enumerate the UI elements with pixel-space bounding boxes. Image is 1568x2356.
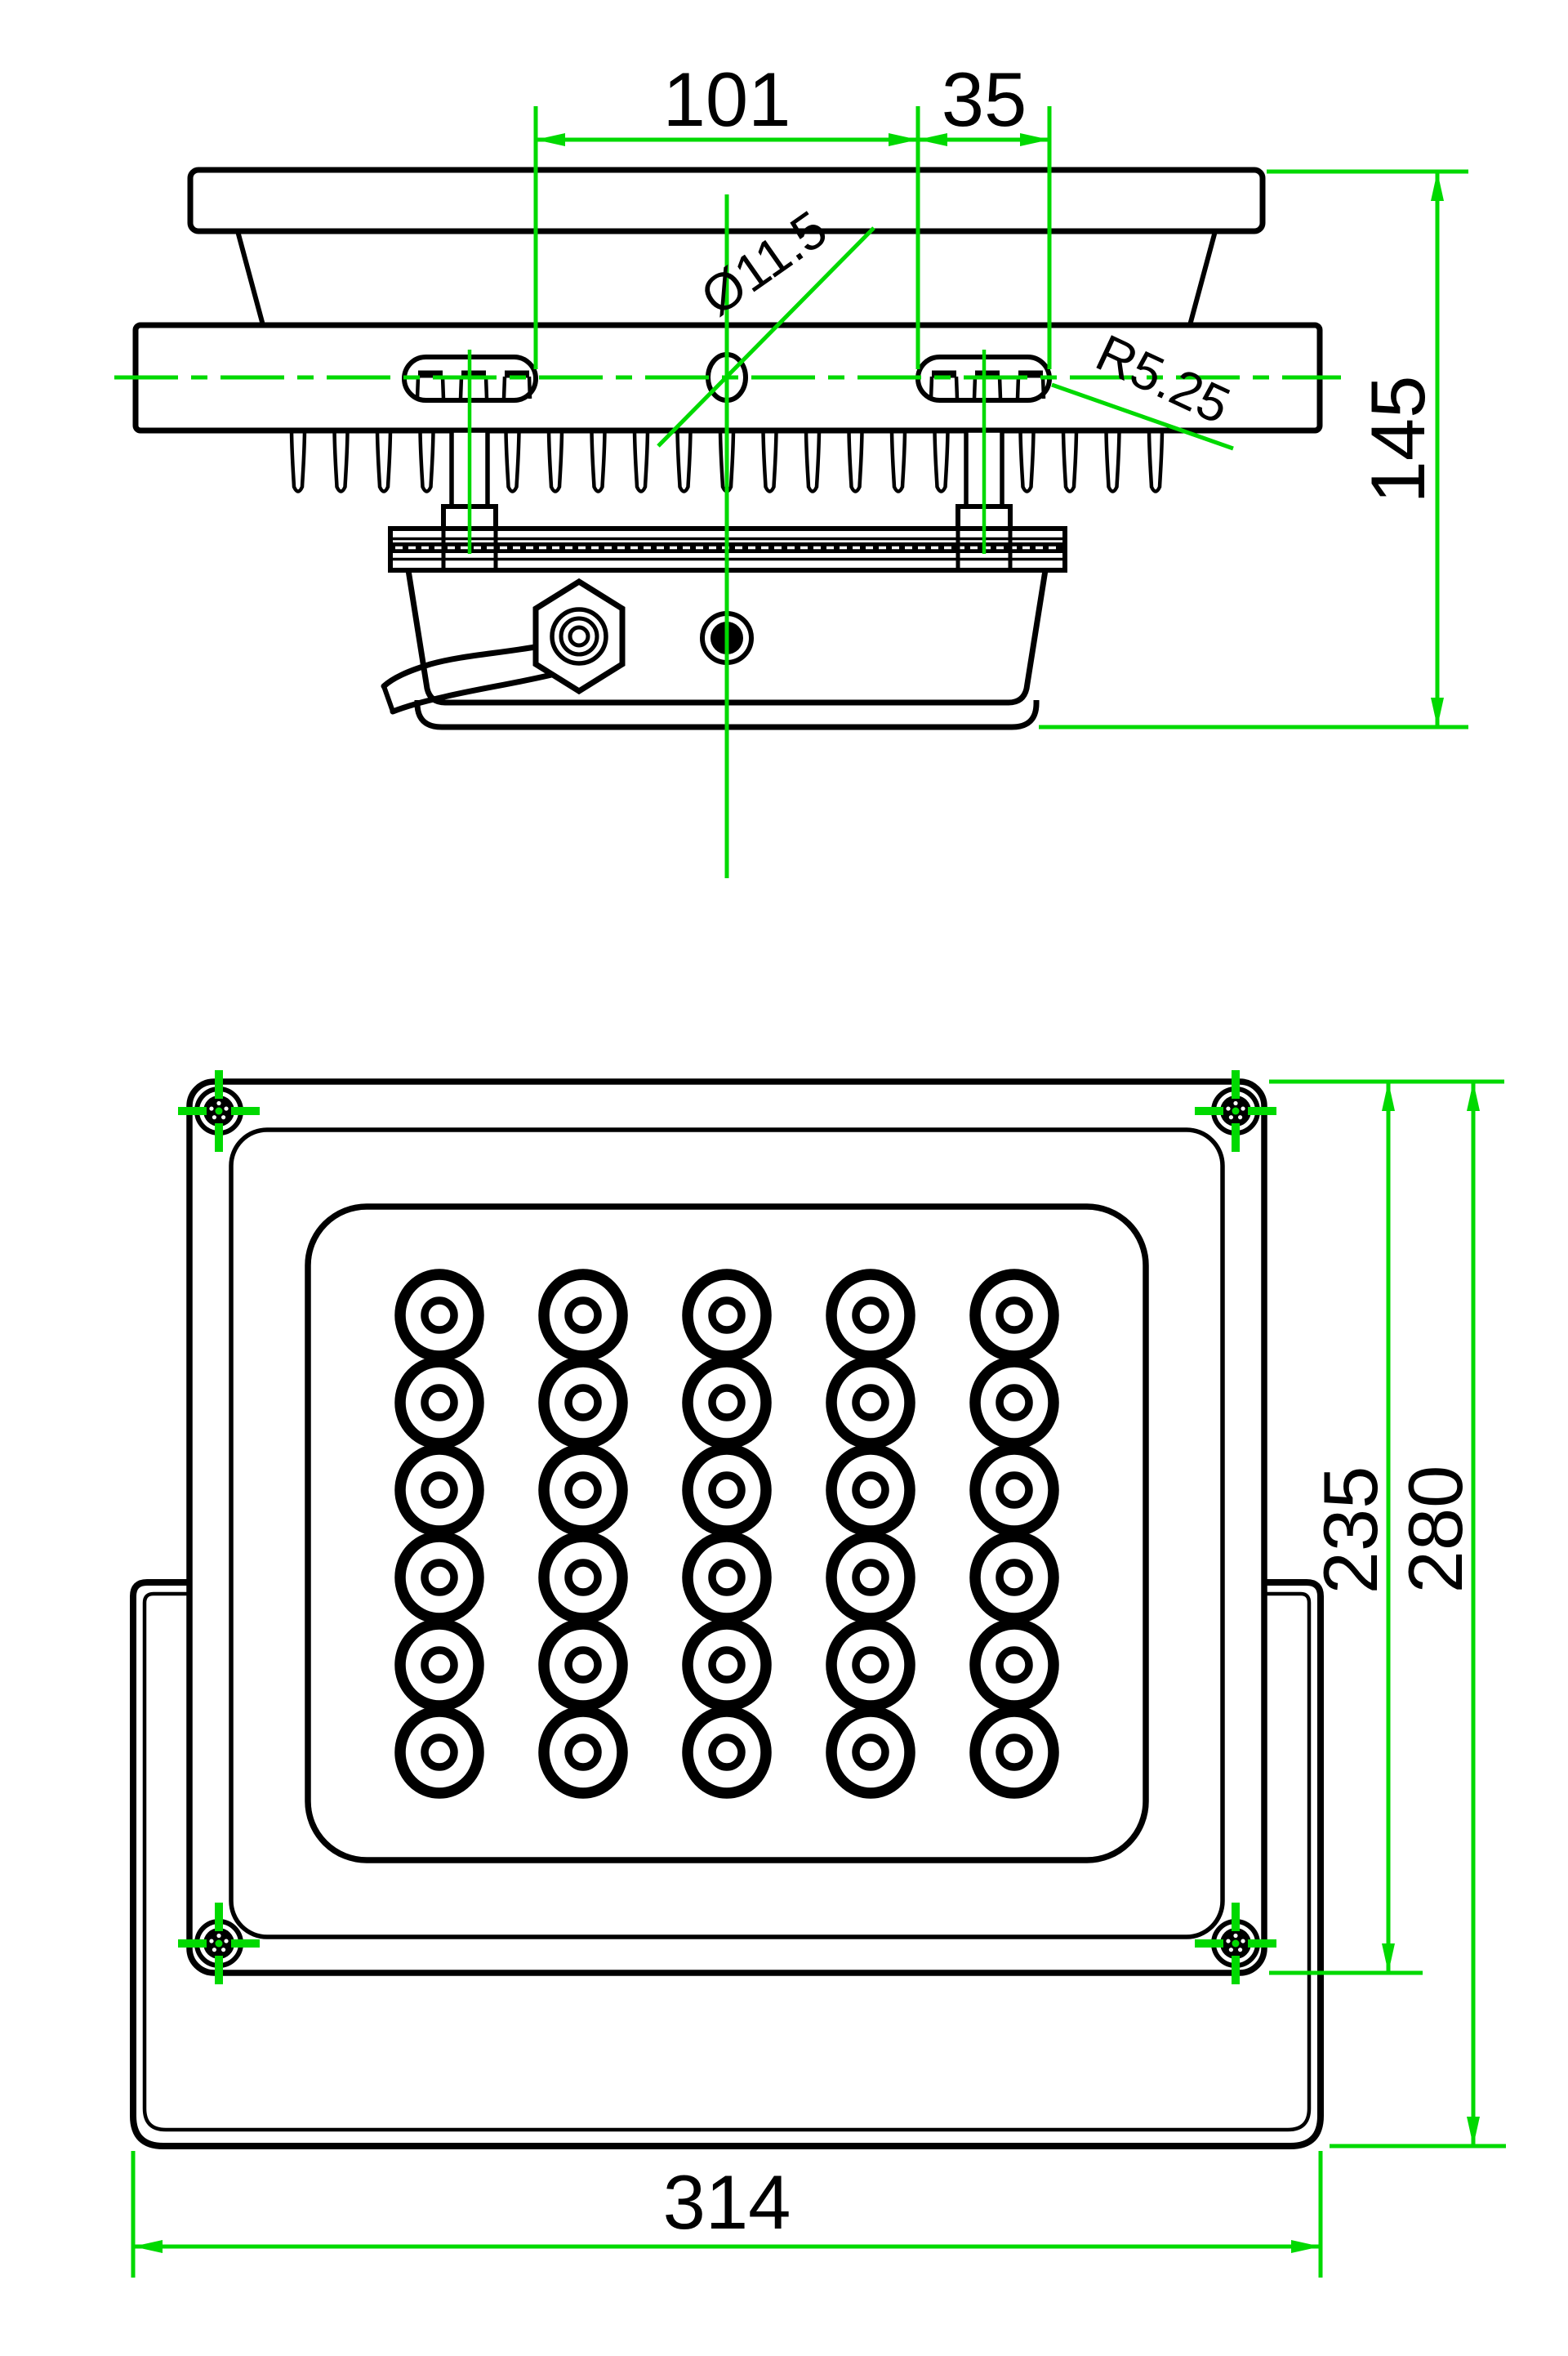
screw-knurl-dot bbox=[1229, 1115, 1233, 1119]
screw-knurl-dot bbox=[212, 1115, 216, 1119]
screw-knurl-dot bbox=[224, 1939, 228, 1943]
arrowhead bbox=[1467, 2117, 1480, 2146]
screw-knurl-dot bbox=[216, 1934, 220, 1938]
heatsink-fin bbox=[1021, 431, 1034, 492]
heatsink-fin bbox=[678, 431, 691, 492]
floodlight-technical-drawing: 101 35 Ø11.5 R5.25 145 235 280 bbox=[0, 0, 1568, 2356]
heatsink-fin bbox=[635, 431, 648, 492]
heatsink-fin bbox=[1107, 431, 1120, 492]
screw-crosshair-dot bbox=[216, 1108, 223, 1115]
side-view: 101 35 Ø11.5 R5.25 145 bbox=[114, 56, 1468, 878]
screw-knurl-dot bbox=[209, 1939, 213, 1943]
screw-knurl-dot bbox=[216, 1101, 220, 1105]
heatsink-fin bbox=[549, 431, 562, 492]
dim-label-280: 280 bbox=[1392, 1466, 1478, 1594]
arrowhead bbox=[889, 133, 918, 146]
cable-end-cut bbox=[384, 686, 393, 712]
screw-knurl-dot bbox=[1226, 1939, 1230, 1943]
dim-label-101: 101 bbox=[663, 56, 791, 142]
screw-knurl-dot bbox=[1241, 1939, 1245, 1943]
arrowhead bbox=[1382, 1082, 1395, 1111]
heatsink-fin bbox=[506, 431, 519, 492]
screw-knurl-dot bbox=[224, 1106, 228, 1110]
heatsink-fin bbox=[292, 431, 305, 492]
screw-crosshair-dot bbox=[1232, 1940, 1240, 1948]
screw-knurl-dot bbox=[1238, 1948, 1242, 1952]
arrowhead bbox=[133, 2240, 163, 2253]
dim-label-145: 145 bbox=[1355, 376, 1441, 504]
screw-knurl-dot bbox=[209, 1106, 213, 1110]
arrowhead bbox=[1467, 1082, 1480, 1111]
gland-hex-nut bbox=[536, 582, 622, 691]
cable-lower-edge bbox=[393, 672, 562, 712]
heatsink-fin bbox=[935, 431, 948, 492]
screw-knurl-dot bbox=[1233, 1934, 1237, 1938]
cable-gland bbox=[536, 582, 622, 691]
heatsink-fin bbox=[806, 431, 819, 492]
heatsink-fin bbox=[1063, 431, 1076, 492]
screw-crosshair-dot bbox=[216, 1940, 223, 1948]
heatsink-fin bbox=[335, 431, 348, 492]
drawing-canvas: 101 35 Ø11.5 R5.25 145 235 280 bbox=[0, 0, 1568, 2356]
dim-label-235: 235 bbox=[1307, 1466, 1393, 1595]
heatsink-fin bbox=[764, 431, 777, 492]
screw-knurl-dot bbox=[1238, 1115, 1242, 1119]
screw-knurl-dot bbox=[1229, 1948, 1233, 1952]
dim-label-hole-diameter: Ø11.5 bbox=[690, 199, 837, 327]
screw-knurl-dot bbox=[1226, 1106, 1230, 1110]
heatsink-fin bbox=[1149, 431, 1162, 492]
screw-knurl-dot bbox=[221, 1115, 225, 1119]
front-view: 235 280 314 bbox=[133, 1070, 1506, 2278]
dim-label-314: 314 bbox=[663, 2159, 791, 2245]
arrowhead bbox=[1431, 698, 1444, 727]
arrowhead bbox=[1431, 172, 1444, 201]
lens-body-right-edge bbox=[1190, 231, 1215, 325]
screw-knurl-dot bbox=[1233, 1101, 1237, 1105]
heatsink-fin bbox=[592, 431, 605, 492]
arrowhead bbox=[1291, 2240, 1321, 2253]
screw-knurl-dot bbox=[212, 1948, 216, 1952]
arrowhead bbox=[1382, 1943, 1395, 1973]
heatsink-fin bbox=[849, 431, 862, 492]
arrowhead bbox=[536, 133, 565, 146]
heatsink-fin bbox=[377, 431, 390, 492]
heatsink-fin bbox=[892, 431, 905, 492]
lens-body-left-edge bbox=[238, 231, 263, 325]
screw-knurl-dot bbox=[1241, 1106, 1245, 1110]
dim-label-35: 35 bbox=[942, 56, 1027, 142]
screw-knurl-dot bbox=[221, 1948, 225, 1952]
heatsink-fin bbox=[421, 431, 434, 492]
screw-crosshair-dot bbox=[1232, 1108, 1240, 1115]
